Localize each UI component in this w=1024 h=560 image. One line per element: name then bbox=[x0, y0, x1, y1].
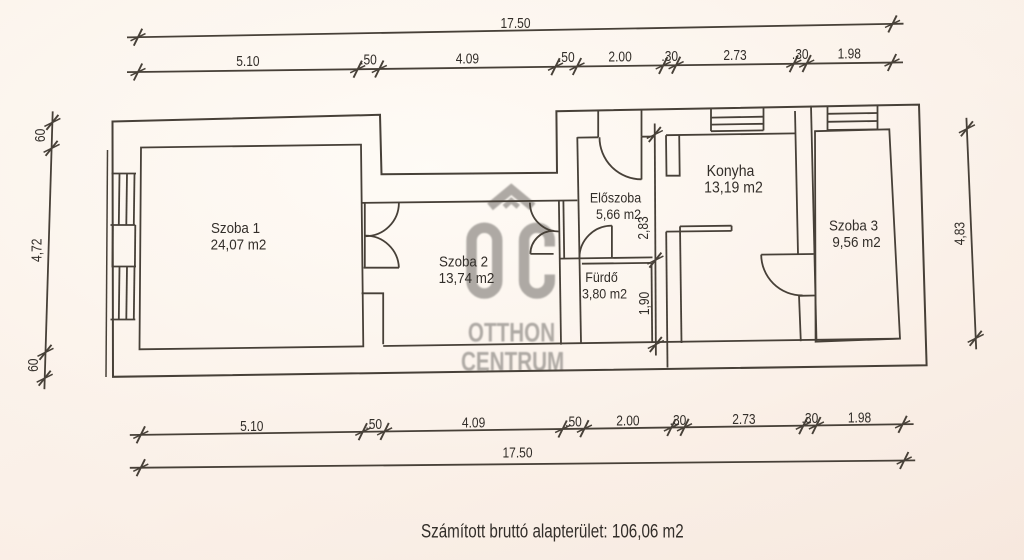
svg-text:Konyha: Konyha bbox=[707, 162, 755, 180]
svg-text:Szoba 3: Szoba 3 bbox=[829, 218, 878, 235]
svg-text:3,80 m2: 3,80 m2 bbox=[582, 286, 627, 302]
svg-text:Fürdő: Fürdő bbox=[585, 269, 618, 285]
svg-text:1.98: 1.98 bbox=[848, 409, 871, 426]
svg-text:.30: .30 bbox=[792, 46, 809, 63]
svg-text:4.09: 4.09 bbox=[456, 50, 479, 67]
svg-text:5.10: 5.10 bbox=[236, 53, 260, 70]
svg-text:2.73: 2.73 bbox=[732, 411, 755, 428]
svg-text:4.09: 4.09 bbox=[462, 414, 485, 431]
svg-text:9,56 m2: 9,56 m2 bbox=[832, 234, 880, 251]
svg-text:5,66 m2: 5,66 m2 bbox=[596, 206, 641, 222]
svg-text:17.50: 17.50 bbox=[500, 15, 530, 32]
svg-text:.30: .30 bbox=[802, 410, 819, 427]
svg-text:5.10: 5.10 bbox=[240, 418, 264, 435]
svg-text:.30: .30 bbox=[661, 48, 678, 65]
svg-text:.30: .30 bbox=[670, 412, 687, 429]
svg-text:.50: .50 bbox=[565, 413, 582, 430]
svg-text:13,19 m2: 13,19 m2 bbox=[704, 179, 763, 197]
svg-text:60: 60 bbox=[32, 128, 49, 142]
svg-text:1,90: 1,90 bbox=[636, 291, 653, 315]
svg-text:Előszoba: Előszoba bbox=[590, 190, 642, 206]
svg-text:2.73: 2.73 bbox=[723, 47, 746, 64]
svg-text:Szoba 2: Szoba 2 bbox=[439, 254, 488, 271]
svg-text:Szoba 1: Szoba 1 bbox=[211, 220, 260, 237]
svg-text:CENTRUM: CENTRUM bbox=[461, 347, 564, 377]
svg-text:.50: .50 bbox=[360, 51, 377, 68]
svg-text:13,74 m2: 13,74 m2 bbox=[439, 270, 495, 287]
svg-text:17.50: 17.50 bbox=[502, 444, 532, 461]
svg-text:24,07 m2: 24,07 m2 bbox=[211, 237, 267, 254]
svg-text:4,72: 4,72 bbox=[28, 239, 45, 262]
svg-text:2.00: 2.00 bbox=[616, 412, 640, 429]
svg-text:4,83: 4,83 bbox=[951, 222, 968, 245]
svg-text:.50: .50 bbox=[558, 49, 575, 66]
svg-text:60: 60 bbox=[25, 358, 42, 372]
svg-text:1.98: 1.98 bbox=[838, 45, 861, 62]
svg-text:2.00: 2.00 bbox=[608, 48, 632, 65]
svg-text:Számított bruttó alapterület:: Számított bruttó alapterület: 106,06 m2 bbox=[421, 520, 684, 542]
svg-text:.50: .50 bbox=[365, 416, 382, 433]
